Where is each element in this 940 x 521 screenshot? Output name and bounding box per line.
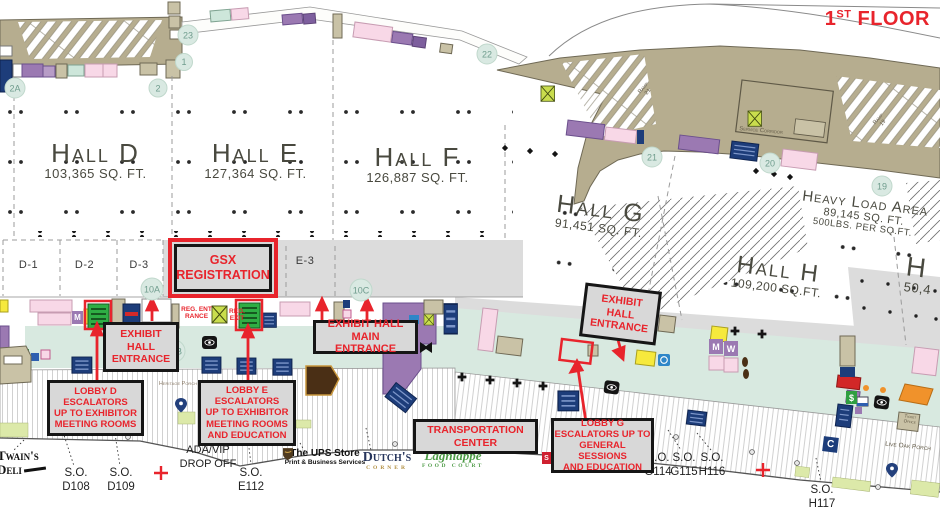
eye-icon [873, 395, 889, 410]
badge-2a: 2A [5, 78, 26, 99]
badge-10a: 10A [141, 278, 164, 301]
zone-d3-label: D-3 [116, 259, 162, 271]
mens-restroom-icon: M [709, 339, 723, 354]
hall-e-label: Hall E 127,364 SQ. FT. [178, 140, 333, 181]
zone-d1-label: D-1 [6, 259, 51, 271]
hall-e-sqft: 127,364 SQ. FT. [178, 167, 333, 181]
floor-number: 1 [825, 8, 837, 30]
exhibit-hall-entrance-g-callout: EXHIBIT HALL ENTRANCE [579, 283, 662, 346]
reg-entrance-label: REG. ENTRANCE [181, 306, 212, 321]
concessions-icon: C [822, 436, 839, 453]
so-h116: H116 [692, 466, 732, 480]
hall-f-label: Hall F 126,887 SQ. FT. [340, 144, 495, 185]
so-h117: H117 [799, 498, 845, 512]
twains-deli-logo: Twain's Deli [0, 449, 59, 478]
badge-19: 19 [872, 176, 893, 197]
so-e112-label: S.O. E112 [229, 467, 273, 495]
so-h116-label: S.O. H116 [692, 452, 732, 480]
so-d108: D108 [54, 481, 98, 495]
service-strip-north [182, 7, 527, 64]
so-prefix: S.O. [229, 467, 273, 481]
shuttle-stop-icon: S [542, 452, 551, 464]
eye-icon [603, 380, 619, 395]
exhibit-hall-entrance-d-callout: EXHIBIT HALL ENTRANCE [103, 322, 179, 372]
hall-d-name: Hall D [18, 140, 173, 167]
ups-store-name: The UPS Store [290, 448, 359, 459]
dutchs-corner-word: CORNER [354, 465, 420, 471]
lobby-d-escalators-callout: LOBBY D ESCALATORS UP TO EXHIBITOR MEETI… [47, 380, 144, 436]
floor-word: FLOOR [858, 8, 931, 30]
so-d109-label: S.O. D109 [99, 467, 143, 495]
twains-deli-word: Deli [0, 463, 59, 477]
gsx-registration-callout: GSX REGISTRATION [168, 238, 278, 298]
so-h117-label: S.O. H117 [799, 484, 845, 512]
so-d109: D109 [99, 481, 143, 495]
dutchs-corner-logo: Dutch's CORNER [354, 450, 420, 471]
zone-e3-label: E-3 [283, 255, 327, 267]
floor-plan-map: 1ST FLOOR Hall D 103,365 SQ. FT. Hall E … [0, 0, 940, 521]
badge-10c: 10C [350, 279, 373, 302]
hall-f-name: Hall F [340, 144, 495, 171]
badge-20: 20 [760, 153, 781, 174]
so-e112: E112 [229, 481, 273, 495]
reg-exit-label: REG. EXIT [226, 308, 248, 323]
badge-2: 2 [149, 79, 168, 98]
eye-icon [202, 336, 217, 349]
hall-f-sqft: 126,887 SQ. FT. [340, 171, 495, 185]
badge-21: 21 [642, 147, 663, 168]
ups-shield-icon [283, 448, 293, 460]
zone-d2-label: D-2 [62, 259, 107, 271]
so-prefix: S.O. [54, 467, 98, 481]
atm-icon: $ [846, 391, 857, 404]
hall-d-label: Hall D 103,365 SQ. FT. [18, 140, 173, 181]
floor-ordinal: ST [836, 8, 851, 20]
twains-name: Twain's [0, 449, 59, 463]
badge-22: 22 [477, 44, 498, 65]
dutchs-name: Dutch's [354, 450, 420, 465]
transportation-center-callout: TRANSPORTATION CENTER [413, 419, 538, 454]
so-d108-label: S.O. D108 [54, 467, 98, 495]
mens-restroom-icon: M [72, 311, 83, 324]
badge-1: 1 [175, 53, 193, 71]
badge-23: 23 [178, 25, 199, 46]
page-title: 1ST FLOOR [818, 8, 930, 31]
womens-restroom-icon: W [724, 341, 738, 356]
so-prefix: S.O. [99, 467, 143, 481]
hall-d-sqft: 103,365 SQ. FT. [18, 167, 173, 181]
lobby-g-escalators-callout: LOBBY G ESCALATORS UP TO GENERAL SESSION… [551, 418, 654, 473]
food-court-word: FOOD COURT [422, 463, 484, 469]
so-prefix: S.O. [692, 452, 732, 466]
pen-swash-icon [24, 467, 46, 473]
so-prefix: S.O. [799, 484, 845, 498]
lobby-e-escalators-callout: LOBBY E ESCALATORS UP TO EXHIBITOR MEETI… [198, 380, 296, 446]
gsx-registration-text: GSX REGISTRATION [174, 244, 272, 292]
exhibit-hall-main-entrance-callout: EXHIBIT HALL MAIN ENTRANCE [313, 320, 418, 354]
hall-e-name: Hall E [178, 140, 333, 167]
deli-text: Deli [0, 462, 22, 477]
